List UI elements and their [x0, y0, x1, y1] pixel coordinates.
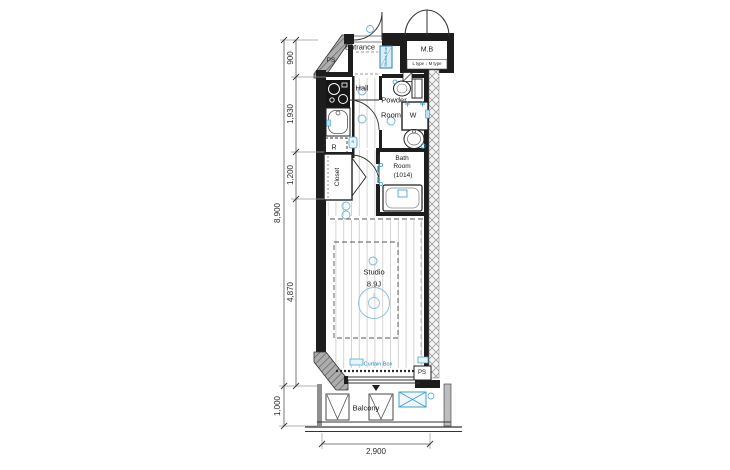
label-powder-room-2: Room — [381, 111, 401, 119]
wash-basin — [404, 130, 425, 149]
label-entrance: Entrance — [345, 43, 375, 51]
balcony-sliding-door — [344, 376, 425, 391]
label-meter-box-types: L type ↓ M type — [413, 62, 442, 66]
left-wall — [316, 70, 326, 354]
dim-2900-width: 2,900 — [366, 448, 386, 456]
label-washer: W — [410, 113, 417, 120]
label-meter-box: M.B — [421, 47, 433, 54]
evacuation-hatch — [399, 392, 426, 407]
bathtub — [383, 185, 422, 211]
balcony-structure — [305, 384, 462, 432]
label-bath-3: (1014) — [394, 173, 413, 180]
label-studio-size: 8.9J — [367, 280, 381, 288]
door-direction-marker — [372, 385, 380, 391]
dim-1000-balcony: 1,000 — [274, 396, 282, 416]
meter-box-doors — [405, 10, 449, 36]
label-curtain-box: Curtain Box — [364, 362, 393, 368]
dim-4870: 4,870 — [287, 282, 295, 302]
dim-8900-total: 8,900 — [274, 203, 282, 223]
label-closet: Closet — [335, 168, 342, 186]
dim-900: 900 — [287, 51, 295, 64]
dim-1200: 1,200 — [287, 165, 295, 185]
floorplan-drawing — [0, 0, 730, 470]
label-studio: Studio — [363, 268, 384, 276]
label-refrigerator: R — [331, 145, 336, 152]
kitchen-sink — [326, 108, 350, 136]
label-bath-1: Bath — [395, 156, 408, 163]
entry-step-lines — [355, 52, 379, 74]
label-bath-2: Room — [393, 164, 410, 171]
label-bath-remote: R — [352, 140, 355, 144]
boundary-lattice-wall — [429, 70, 439, 378]
label-hall: Hall — [356, 84, 369, 92]
label-shoes-box: Shoes Box — [384, 47, 388, 66]
label-powder-room-1: Powder — [381, 96, 406, 104]
label-balcony: Balcony — [353, 404, 380, 412]
dim-1930: 1,930 — [287, 104, 295, 124]
label-ps-top: PS — [327, 58, 336, 65]
floorplan-canvas: Entrance Hall Powder Room W Bath Room (1… — [0, 0, 730, 470]
gas-stove — [326, 80, 350, 108]
label-ps-bottom: PS — [418, 370, 426, 376]
